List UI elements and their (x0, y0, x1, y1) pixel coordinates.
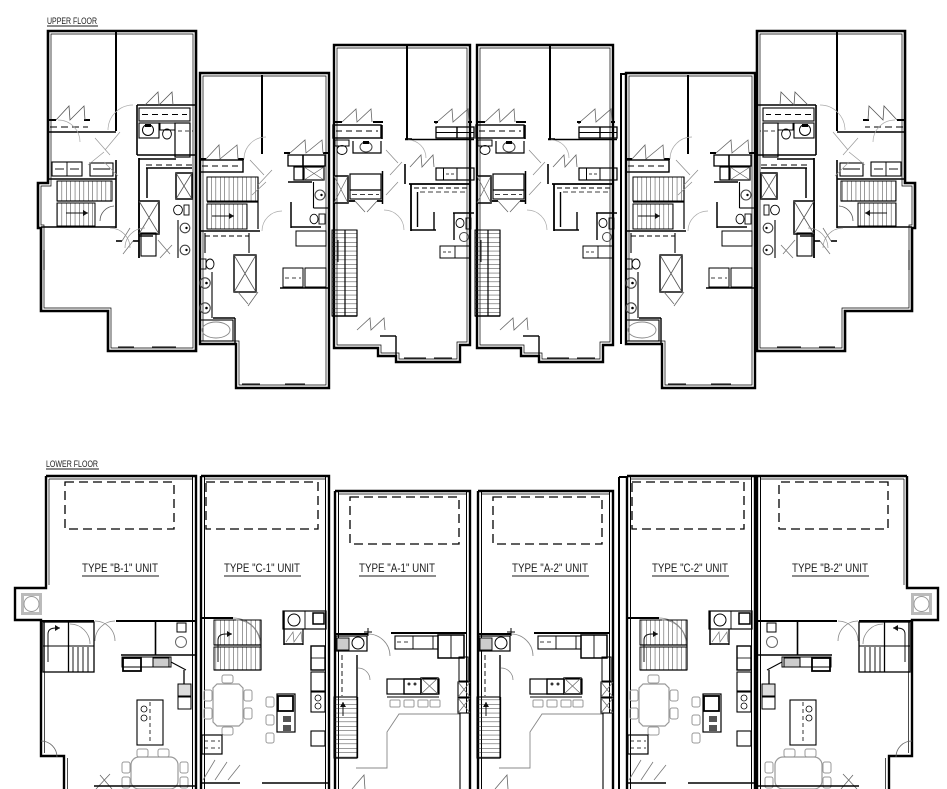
svg-text:TYPE "C-1" UNIT: TYPE "C-1" UNIT (224, 561, 301, 575)
svg-text:TYPE "B-1" UNIT: TYPE "B-1" UNIT (82, 561, 159, 575)
svg-text:UPPER FLOOR: UPPER FLOOR (47, 16, 97, 26)
svg-text:TYPE "C-2" UNIT: TYPE "C-2" UNIT (652, 561, 729, 575)
svg-text:TYPE "A-2" UNIT: TYPE "A-2" UNIT (512, 561, 589, 575)
svg-text:TYPE "B-2" UNIT: TYPE "B-2" UNIT (792, 561, 869, 575)
svg-text:LOWER FLOOR: LOWER FLOOR (46, 459, 98, 469)
svg-text:TYPE "A-1" UNIT: TYPE "A-1" UNIT (359, 561, 436, 575)
